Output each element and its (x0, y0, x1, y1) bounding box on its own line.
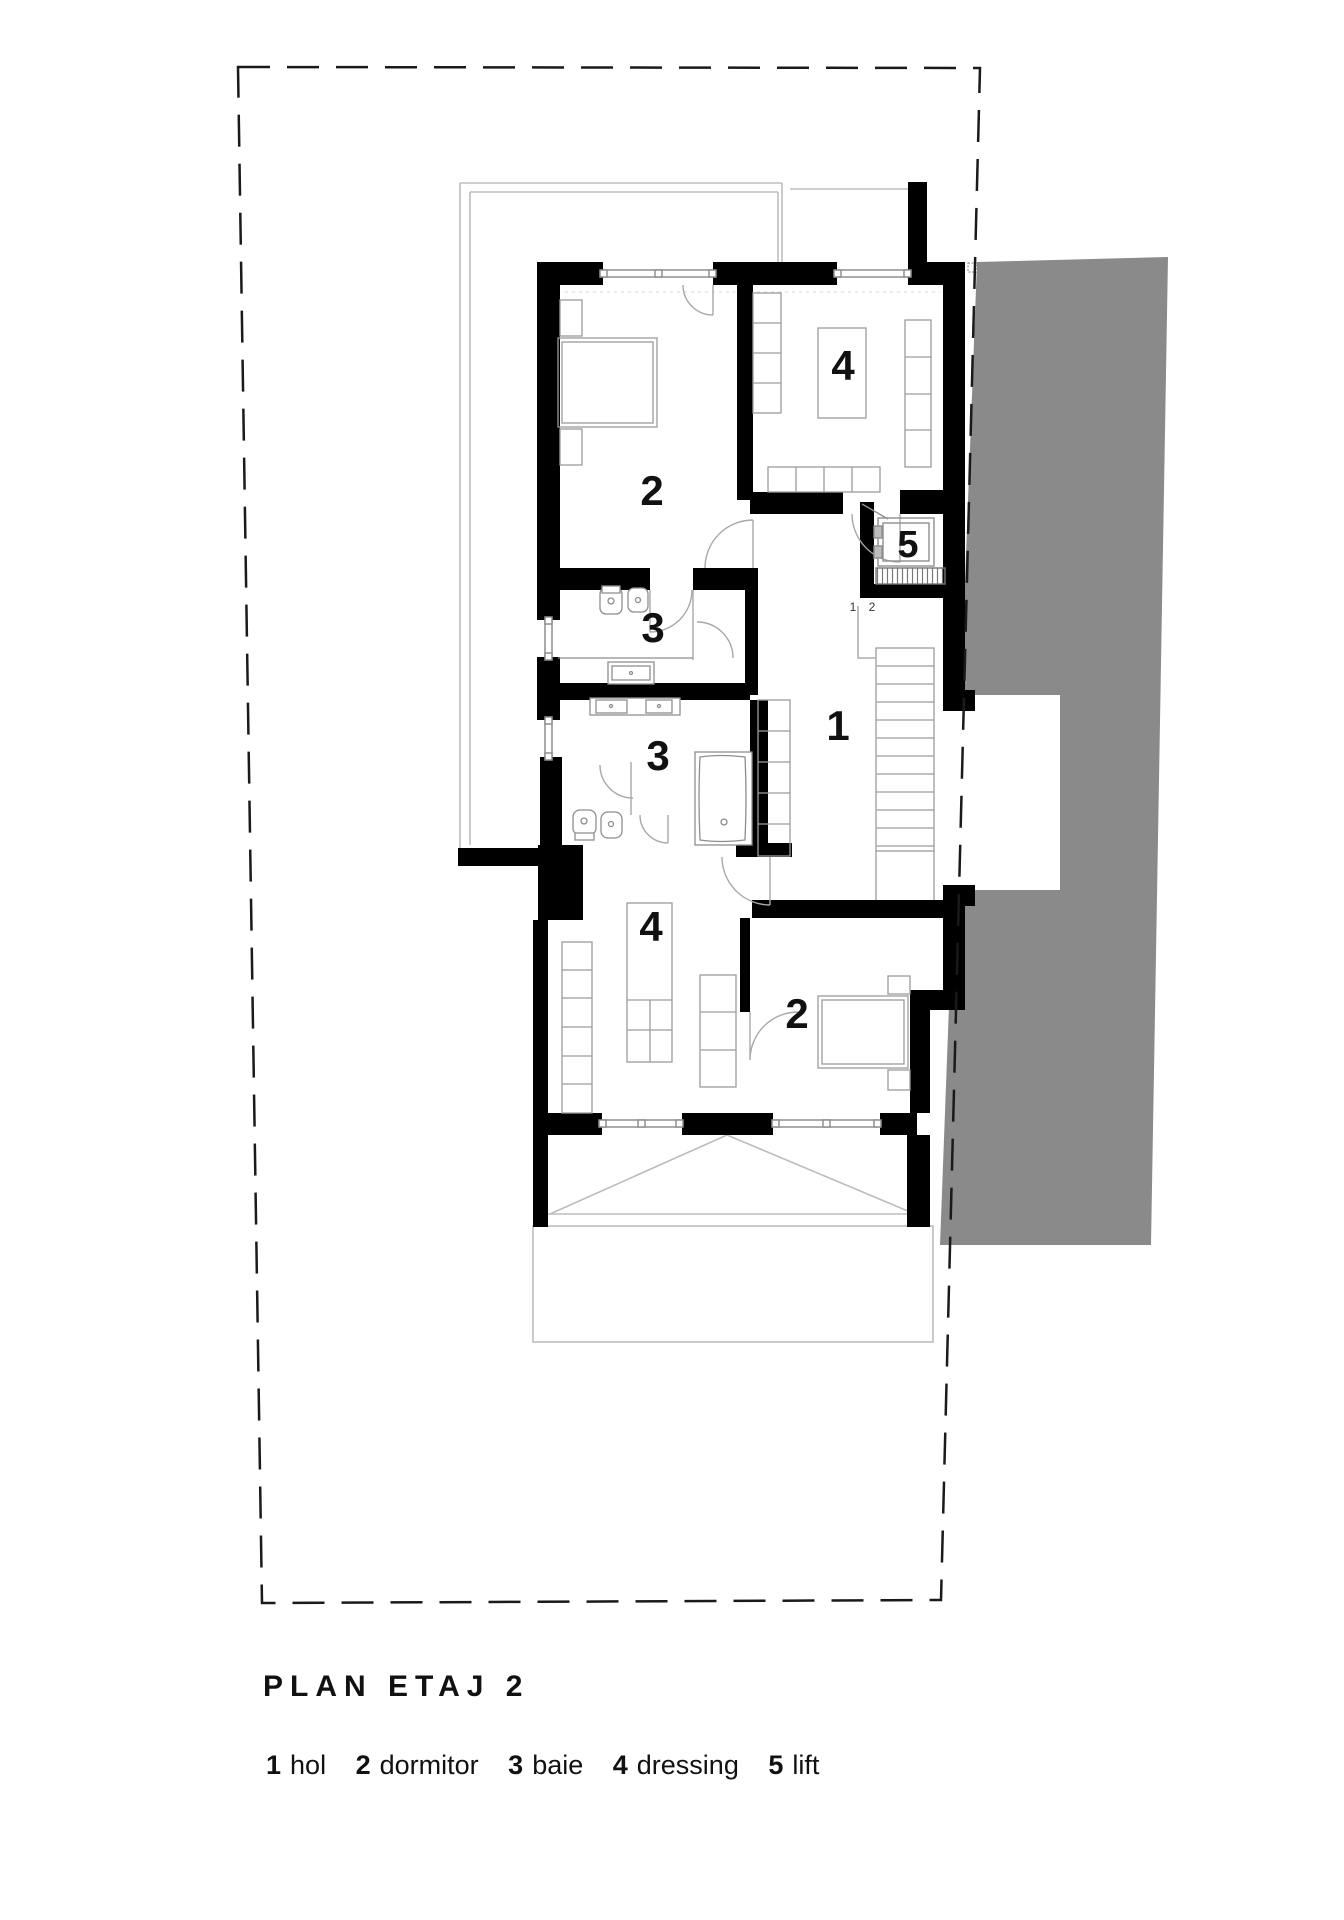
wall-segment (537, 657, 560, 720)
room-label-dressing-bottom: 4 (639, 903, 663, 950)
wall-segment (943, 690, 975, 711)
furniture-baie-top (558, 586, 693, 684)
wall-segment (745, 568, 758, 695)
legend-num: 2 (356, 1750, 371, 1780)
wall-segment (900, 490, 947, 514)
room-label-dressing-top: 4 (831, 342, 855, 389)
wall-segment (880, 1113, 917, 1135)
wall-segment (713, 262, 837, 285)
legend: 1hol 2dormitor 3baie 4dressing 5lift (266, 1750, 841, 1781)
room-label-hol: 1 (826, 702, 849, 749)
wall-segment (943, 262, 965, 692)
furniture-dressing-top (753, 293, 931, 492)
wall-segment (737, 285, 753, 500)
room-label-dormitor-top: 2 (640, 467, 663, 514)
furniture-dormitor-bottom (818, 976, 910, 1090)
legend-num: 1 (266, 1750, 281, 1780)
wall-segment (750, 492, 843, 514)
lift-door-sill (876, 568, 945, 584)
page-title: PLAN ETAJ 2 (263, 1670, 529, 1704)
stair-step-2: 2 (869, 600, 876, 614)
room-label-baie-top: 3 (641, 604, 664, 651)
floor-plan-sheet: 2 4 5 3 1 3 4 2 1 2 PLAN ETAJ 2 1hol 2do… (0, 0, 1344, 1920)
legend-item-dressing: 4dressing (613, 1750, 739, 1780)
legend-label: dormitor (380, 1750, 479, 1780)
wall-segment (750, 700, 768, 850)
legend-item-hol: 1hol (266, 1750, 326, 1780)
legend-label: hol (290, 1750, 326, 1780)
shadow-block (940, 257, 1168, 1245)
wall-segment (740, 918, 750, 1012)
legend-item-baie: 3baie (508, 1750, 583, 1780)
wall-segment (910, 1000, 930, 1113)
legend-num: 5 (768, 1750, 783, 1780)
shadow-notch (953, 695, 1060, 890)
staircase (858, 606, 934, 900)
wall-segment (533, 920, 548, 1227)
legend-num: 3 (508, 1750, 523, 1780)
wall-segment (538, 845, 583, 920)
legend-item-lift: 5lift (768, 1750, 819, 1780)
wall-segment (540, 757, 562, 847)
room-label-dormitor-bottom: 2 (785, 990, 808, 1037)
legend-label: lift (792, 1750, 819, 1780)
legend-num: 4 (613, 1750, 628, 1780)
legend-label: dressing (637, 1750, 739, 1780)
plan-canvas: 2 4 5 3 1 3 4 2 1 2 (0, 0, 1344, 1920)
wall-segment (752, 900, 950, 918)
wall-segment (860, 584, 948, 598)
wall-segment (537, 262, 560, 620)
wall-segment (458, 848, 540, 866)
room-label-baie-bottom: 3 (646, 732, 669, 779)
legend-label: baie (532, 1750, 583, 1780)
room-label-lift: 5 (897, 524, 918, 566)
stair-step-numbers: 1 2 (850, 600, 876, 614)
furniture-dormitor-top (558, 300, 657, 465)
wall-segment (907, 1135, 930, 1227)
wall-segment (682, 1113, 773, 1135)
stair-step-1: 1 (850, 600, 857, 614)
wall-segment (860, 502, 874, 598)
legend-item-dormitor: 2dormitor (356, 1750, 479, 1780)
wall-segment (548, 1113, 602, 1135)
